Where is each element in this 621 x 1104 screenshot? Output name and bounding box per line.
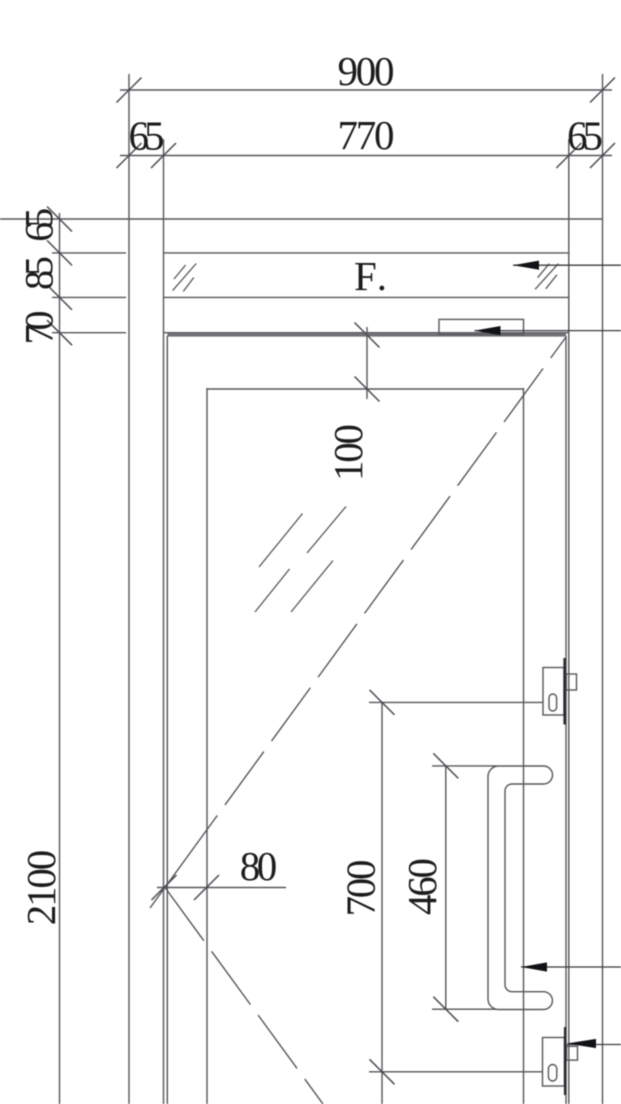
svg-text:65: 65 — [129, 113, 165, 159]
svg-text:770: 770 — [338, 112, 395, 158]
svg-text:100: 100 — [325, 424, 371, 481]
svg-text:70: 70 — [17, 311, 62, 345]
svg-text:2100: 2100 — [18, 850, 64, 926]
svg-text:900: 900 — [338, 48, 395, 94]
svg-text:F.: F. — [354, 253, 387, 299]
svg-text:460: 460 — [399, 858, 445, 915]
svg-text:700: 700 — [337, 860, 383, 917]
svg-text:85: 85 — [17, 256, 62, 290]
svg-text:65: 65 — [17, 208, 62, 242]
svg-text:80: 80 — [240, 843, 278, 889]
svg-text:65: 65 — [567, 113, 603, 159]
